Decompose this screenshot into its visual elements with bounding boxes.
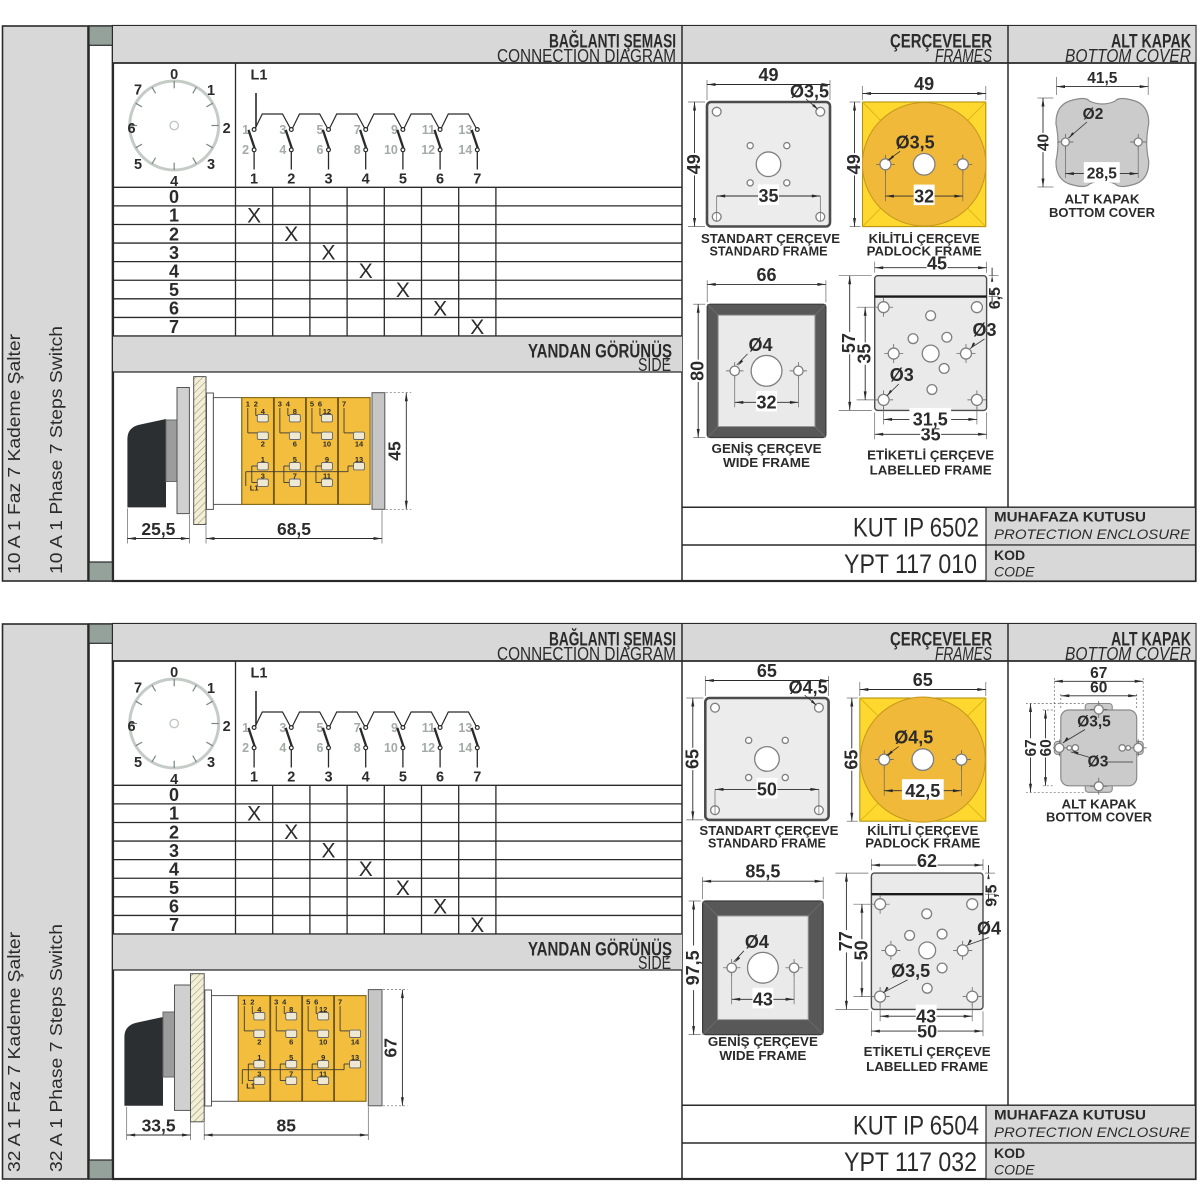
svg-text:PROTECTION ENCLOSURE: PROTECTION ENCLOSURE xyxy=(994,527,1191,542)
svg-text:35: 35 xyxy=(855,344,875,364)
svg-text:5: 5 xyxy=(310,399,314,408)
svg-text:32: 32 xyxy=(757,393,777,413)
svg-text:X: X xyxy=(396,877,410,900)
svg-text:GENİŞ ÇERÇEVE: GENİŞ ÇERÇEVE xyxy=(708,1034,818,1049)
svg-text:L1: L1 xyxy=(251,666,268,682)
svg-text:50: 50 xyxy=(851,940,871,960)
svg-text:1: 1 xyxy=(242,123,249,137)
svg-text:CODE: CODE xyxy=(994,564,1035,580)
svg-text:13: 13 xyxy=(458,123,472,137)
svg-text:Ø4,5: Ø4,5 xyxy=(789,678,828,698)
svg-text:4: 4 xyxy=(169,859,179,879)
svg-text:6: 6 xyxy=(127,121,135,137)
svg-text:85: 85 xyxy=(277,1116,297,1136)
svg-text:Ø4: Ø4 xyxy=(745,932,769,952)
svg-text:2: 2 xyxy=(287,770,295,786)
svg-text:SIDE: SIDE xyxy=(638,354,671,375)
svg-text:L1: L1 xyxy=(246,1082,255,1091)
svg-text:X: X xyxy=(359,260,373,283)
svg-text:4: 4 xyxy=(362,770,370,786)
svg-text:2: 2 xyxy=(242,143,249,157)
svg-text:BOTTOM COVER: BOTTOM COVER xyxy=(1065,643,1191,664)
svg-text:7: 7 xyxy=(169,915,179,935)
svg-text:PADLOCK FRAME: PADLOCK FRAME xyxy=(865,835,980,850)
svg-text:1: 1 xyxy=(207,681,215,697)
svg-text:Ø4,5: Ø4,5 xyxy=(894,728,933,748)
svg-text:Ø3: Ø3 xyxy=(972,320,996,340)
svg-text:4: 4 xyxy=(279,741,286,755)
svg-text:GENİŞ ÇERÇEVE: GENİŞ ÇERÇEVE xyxy=(712,441,822,456)
svg-text:2: 2 xyxy=(250,997,254,1006)
svg-text:3: 3 xyxy=(278,399,282,408)
svg-text:1: 1 xyxy=(169,206,179,226)
svg-text:32 A 1 Phase 7 Steps Switch: 32 A 1 Phase 7 Steps Switch xyxy=(46,924,66,1172)
svg-text:13: 13 xyxy=(458,721,472,735)
svg-text:1: 1 xyxy=(207,83,215,99)
svg-text:6: 6 xyxy=(436,770,444,786)
svg-text:Ø3,5: Ø3,5 xyxy=(896,132,935,152)
svg-text:65: 65 xyxy=(913,670,933,690)
svg-text:FRAMES: FRAMES xyxy=(935,45,992,66)
svg-text:5: 5 xyxy=(399,172,407,188)
svg-text:0: 0 xyxy=(169,187,179,207)
svg-text:4: 4 xyxy=(362,172,370,188)
svg-text:45: 45 xyxy=(384,441,404,461)
svg-text:14: 14 xyxy=(351,1038,360,1047)
svg-text:7: 7 xyxy=(473,172,481,188)
svg-text:10: 10 xyxy=(323,440,331,449)
svg-text:1: 1 xyxy=(169,804,179,824)
svg-text:2: 2 xyxy=(257,1038,261,1047)
svg-text:2: 2 xyxy=(223,719,231,735)
svg-text:10 A 1 Faz 7 Kademe Şalter: 10 A 1 Faz 7 Kademe Şalter xyxy=(4,334,24,574)
svg-text:6: 6 xyxy=(314,997,318,1006)
svg-text:49: 49 xyxy=(844,154,864,174)
svg-text:9,5: 9,5 xyxy=(984,884,1001,906)
svg-text:0: 0 xyxy=(170,665,178,681)
svg-text:X: X xyxy=(433,297,447,320)
svg-text:6: 6 xyxy=(436,172,444,188)
svg-text:L1: L1 xyxy=(250,484,259,493)
svg-text:Ø4: Ø4 xyxy=(749,335,773,355)
svg-text:Ø3,5: Ø3,5 xyxy=(790,82,829,102)
svg-text:Ø4: Ø4 xyxy=(977,919,1001,939)
svg-text:PROTECTION ENCLOSURE: PROTECTION ENCLOSURE xyxy=(994,1125,1191,1140)
svg-text:66: 66 xyxy=(757,265,777,285)
svg-text:42,5: 42,5 xyxy=(905,781,940,801)
svg-text:Ø3: Ø3 xyxy=(890,365,914,385)
svg-text:45: 45 xyxy=(927,254,947,274)
svg-text:67: 67 xyxy=(380,1038,400,1057)
svg-text:85,5: 85,5 xyxy=(745,862,780,882)
svg-text:2: 2 xyxy=(287,172,295,188)
svg-text:6: 6 xyxy=(318,399,322,408)
svg-text:YPT 117 010: YPT 117 010 xyxy=(844,549,977,579)
svg-text:7: 7 xyxy=(134,681,142,697)
svg-text:CODE: CODE xyxy=(994,1162,1035,1178)
svg-text:43: 43 xyxy=(753,990,773,1010)
svg-text:7: 7 xyxy=(134,83,142,99)
svg-text:97,5: 97,5 xyxy=(683,950,703,985)
svg-text:2: 2 xyxy=(242,741,249,755)
svg-text:5: 5 xyxy=(399,770,407,786)
svg-text:11: 11 xyxy=(422,123,435,137)
svg-text:35: 35 xyxy=(758,186,778,206)
svg-text:BOTTOM COVER: BOTTOM COVER xyxy=(1046,810,1153,825)
svg-text:6: 6 xyxy=(293,440,297,449)
svg-text:6: 6 xyxy=(169,299,179,319)
svg-text:40: 40 xyxy=(1036,134,1053,151)
svg-text:WIDE FRAME: WIDE FRAME xyxy=(723,455,810,470)
svg-text:5: 5 xyxy=(169,280,179,300)
svg-text:12: 12 xyxy=(421,143,435,157)
svg-text:6: 6 xyxy=(289,1038,293,1047)
svg-text:9: 9 xyxy=(391,721,398,735)
svg-text:X: X xyxy=(359,858,373,881)
svg-text:L1: L1 xyxy=(251,68,268,84)
svg-text:49: 49 xyxy=(914,74,934,94)
svg-text:14: 14 xyxy=(355,440,364,449)
svg-text:10: 10 xyxy=(384,741,398,755)
svg-text:4: 4 xyxy=(279,143,286,157)
svg-text:X: X xyxy=(284,821,298,844)
svg-text:60: 60 xyxy=(1038,739,1055,756)
svg-text:31,5: 31,5 xyxy=(913,410,948,430)
svg-text:7: 7 xyxy=(354,123,361,137)
svg-text:X: X xyxy=(284,223,298,246)
svg-text:Ø3,5: Ø3,5 xyxy=(891,961,930,981)
svg-text:X: X xyxy=(433,895,447,918)
svg-text:ETİKETLİ ÇERÇEVE: ETİKETLİ ÇERÇEVE xyxy=(864,1044,991,1059)
svg-text:LABELLED FRAME: LABELLED FRAME xyxy=(866,1059,988,1074)
svg-text:43: 43 xyxy=(916,1006,936,1026)
svg-text:10 A 1 Phase 7 Steps Switch: 10 A 1 Phase 7 Steps Switch xyxy=(46,326,66,574)
svg-text:11: 11 xyxy=(422,721,435,735)
svg-text:X: X xyxy=(247,802,261,825)
svg-text:3: 3 xyxy=(324,770,332,786)
svg-text:65: 65 xyxy=(682,749,702,769)
svg-text:X: X xyxy=(247,204,261,227)
svg-text:7: 7 xyxy=(354,721,361,735)
svg-text:1: 1 xyxy=(250,770,258,786)
svg-text:BOTTOM COVER: BOTTOM COVER xyxy=(1065,45,1191,66)
svg-text:3: 3 xyxy=(207,755,215,771)
svg-text:2: 2 xyxy=(169,822,179,842)
svg-text:41,5: 41,5 xyxy=(1087,70,1118,87)
svg-text:6: 6 xyxy=(317,741,324,755)
svg-text:6: 6 xyxy=(169,897,179,917)
svg-text:3: 3 xyxy=(169,841,179,861)
svg-text:KOD: KOD xyxy=(994,547,1025,563)
svg-text:7: 7 xyxy=(338,997,342,1006)
svg-text:32: 32 xyxy=(914,186,934,206)
svg-text:X: X xyxy=(321,840,335,863)
svg-text:14: 14 xyxy=(458,143,472,157)
svg-text:8: 8 xyxy=(354,741,361,755)
svg-text:5: 5 xyxy=(134,157,142,173)
svg-text:KUT IP 6502: KUT IP 6502 xyxy=(853,512,979,542)
svg-text:Ø2: Ø2 xyxy=(1083,106,1104,123)
svg-text:8: 8 xyxy=(354,143,361,157)
svg-text:62: 62 xyxy=(917,851,937,871)
svg-text:9: 9 xyxy=(391,123,398,137)
svg-text:49: 49 xyxy=(758,65,778,85)
svg-text:2: 2 xyxy=(261,440,265,449)
svg-text:5: 5 xyxy=(317,721,324,735)
svg-text:3: 3 xyxy=(207,157,215,173)
svg-text:7: 7 xyxy=(169,317,179,337)
svg-text:28,5: 28,5 xyxy=(1087,166,1118,183)
svg-text:33,5: 33,5 xyxy=(142,1116,176,1136)
svg-text:50: 50 xyxy=(757,780,777,800)
svg-text:65: 65 xyxy=(841,750,861,770)
svg-text:14: 14 xyxy=(458,741,472,755)
svg-text:7: 7 xyxy=(473,770,481,786)
svg-text:1: 1 xyxy=(242,997,246,1006)
svg-text:3: 3 xyxy=(279,123,286,137)
svg-text:25,5: 25,5 xyxy=(141,519,175,539)
svg-text:BOTTOM COVER: BOTTOM COVER xyxy=(1049,205,1156,220)
svg-text:STANDARD FRAME: STANDARD FRAME xyxy=(710,244,828,259)
svg-text:3: 3 xyxy=(279,721,286,735)
svg-text:6: 6 xyxy=(317,143,324,157)
svg-text:68,5: 68,5 xyxy=(277,519,311,539)
svg-text:Ø3: Ø3 xyxy=(1088,753,1109,770)
svg-text:5: 5 xyxy=(169,878,179,898)
svg-text:0: 0 xyxy=(170,67,178,83)
svg-text:1: 1 xyxy=(242,721,249,735)
svg-text:X: X xyxy=(396,279,410,302)
svg-text:LABELLED FRAME: LABELLED FRAME xyxy=(870,463,992,478)
svg-text:CONNECTION DIAGRAM: CONNECTION DIAGRAM xyxy=(497,643,676,664)
svg-text:ETİKETLİ ÇERÇEVE: ETİKETLİ ÇERÇEVE xyxy=(867,448,994,463)
svg-text:KOD: KOD xyxy=(994,1145,1025,1161)
svg-text:3: 3 xyxy=(274,997,278,1006)
svg-text:X: X xyxy=(321,242,335,265)
svg-text:7: 7 xyxy=(342,399,346,408)
svg-text:MUHAFAZA KUTUSU: MUHAFAZA KUTUSU xyxy=(994,510,1146,525)
svg-text:12: 12 xyxy=(421,741,435,755)
svg-text:1: 1 xyxy=(250,172,258,188)
svg-text:65: 65 xyxy=(757,661,777,681)
svg-text:Ø3,5: Ø3,5 xyxy=(1077,714,1111,731)
svg-text:WIDE FRAME: WIDE FRAME xyxy=(719,1048,806,1063)
svg-text:CONNECTION DIAGRAM: CONNECTION DIAGRAM xyxy=(497,45,676,66)
svg-text:3: 3 xyxy=(324,172,332,188)
svg-text:80: 80 xyxy=(688,361,708,381)
svg-text:PADLOCK FRAME: PADLOCK FRAME xyxy=(867,244,982,259)
svg-text:2: 2 xyxy=(169,224,179,244)
svg-text:5: 5 xyxy=(134,755,142,771)
svg-text:6,5: 6,5 xyxy=(987,287,1004,309)
svg-text:49: 49 xyxy=(684,154,704,174)
svg-text:5: 5 xyxy=(306,997,310,1006)
svg-text:SIDE: SIDE xyxy=(638,952,671,973)
svg-text:60: 60 xyxy=(1090,679,1107,696)
svg-text:2: 2 xyxy=(223,121,231,137)
svg-text:5: 5 xyxy=(317,123,324,137)
svg-text:3: 3 xyxy=(169,243,179,263)
svg-text:KUT IP 6504: KUT IP 6504 xyxy=(853,1110,979,1140)
svg-text:10: 10 xyxy=(384,143,398,157)
svg-text:YPT 117 032: YPT 117 032 xyxy=(844,1147,977,1177)
svg-text:6: 6 xyxy=(127,719,135,735)
svg-text:2: 2 xyxy=(254,399,258,408)
svg-text:10: 10 xyxy=(319,1038,327,1047)
svg-text:STANDARD FRAME: STANDARD FRAME xyxy=(708,835,826,850)
svg-text:32 A 1 Faz 7 Kademe Şalter: 32 A 1 Faz 7 Kademe Şalter xyxy=(4,932,24,1172)
svg-text:4: 4 xyxy=(169,261,179,281)
svg-text:MUHAFAZA KUTUSU: MUHAFAZA KUTUSU xyxy=(994,1108,1146,1123)
svg-text:0: 0 xyxy=(169,785,179,805)
svg-text:1: 1 xyxy=(246,399,250,408)
svg-text:FRAMES: FRAMES xyxy=(935,643,992,664)
